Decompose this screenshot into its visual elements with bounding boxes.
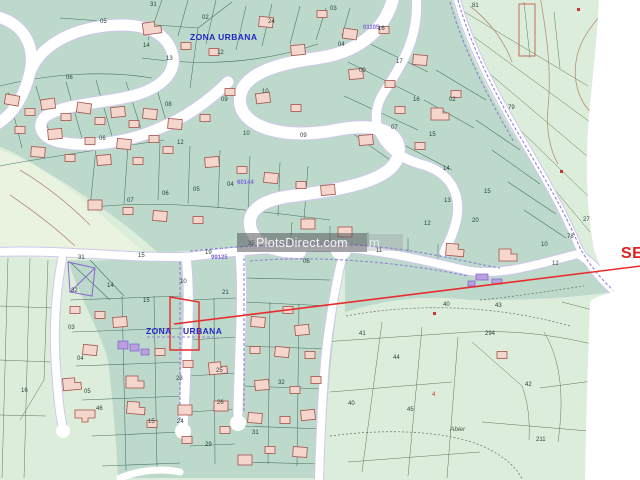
parcel-number-label: 41: [359, 331, 366, 337]
parcel-number-label: 03: [330, 6, 337, 12]
parcel-number-label: 05: [84, 389, 91, 395]
street-code-label: 60144: [237, 180, 254, 186]
parcel-number-label: 15: [484, 189, 491, 195]
zona-urbana-label: ZONA: [146, 327, 172, 336]
parcel-number-label: 40: [443, 302, 450, 308]
parcel-number-label: 14: [443, 166, 450, 172]
parcel-number-label: Abier: [450, 427, 465, 434]
parcel-number-label: 32: [278, 380, 285, 386]
parcel-number-label: 31: [252, 430, 259, 436]
parcel-number-label: 43: [495, 303, 502, 309]
parcel-number-label: 05: [100, 19, 107, 25]
parcel-number-label: 10: [243, 131, 250, 137]
parcel-number-label: 07: [127, 198, 134, 204]
parcel-number-label: 12: [552, 261, 559, 267]
parcel-number-label: 06: [303, 259, 310, 265]
parcel-number-label: 13: [166, 56, 173, 62]
parcel-number-label: 294: [485, 331, 495, 337]
parcel-number-label: 03: [68, 325, 75, 331]
parcel-number-label: 78: [567, 234, 574, 240]
zona-urbana-label: ZONA URBANA: [190, 33, 257, 42]
parcel-number-label: 02: [202, 15, 209, 21]
parcel-number-label: 09: [300, 133, 307, 139]
parcel-number-label: 79: [508, 105, 515, 111]
parcel-number-label: 16: [413, 97, 420, 103]
parcel-number-label: 21: [222, 290, 229, 296]
parcel-number-label: 14: [107, 283, 114, 289]
parcel-number-label: 15: [429, 132, 436, 138]
culdesac-3: [56, 424, 70, 438]
parcel-number-label: 12: [217, 50, 224, 56]
parcel-number-label: 02: [449, 97, 456, 103]
cadastral-map-page: ZONA URBANAZONAURBANA991250110560144Abie…: [0, 0, 640, 480]
parcel-number-label: 25: [216, 368, 223, 374]
parcel-number-label: 40: [348, 401, 355, 407]
culdesac-2: [230, 415, 246, 431]
parcel-number-label: 09: [221, 97, 228, 103]
parcel-number-label: 4: [432, 392, 435, 398]
street-code-label: 01105: [363, 25, 379, 31]
parcel-number-label: 31: [150, 2, 157, 8]
parcel-number-label: 10: [541, 242, 548, 248]
parcel-number-label: 45: [407, 407, 414, 413]
parcel-number-label: 81: [472, 3, 479, 9]
parcel-number-label: 23: [176, 376, 183, 382]
parcel-number-label: 06: [66, 75, 73, 81]
parcel-number-label: 19: [205, 250, 212, 256]
parcel-number-label: 15: [148, 419, 155, 425]
parcel-number-label: 04: [227, 182, 234, 188]
parcel-number-label: 10: [180, 279, 187, 285]
parcel-number-label: 15: [143, 298, 150, 304]
parcel-number-label: 44: [393, 355, 400, 361]
parcel-number-label: 08: [165, 102, 172, 108]
parcel-number-label: 20: [472, 218, 479, 224]
zona-urbana-label: URBANA: [183, 327, 222, 336]
parcel-number-label: 06: [162, 191, 169, 197]
watermark-ghost: m: [367, 234, 403, 251]
parcel-number-label: 27: [583, 217, 590, 223]
parcel-number-label: 15: [138, 253, 145, 259]
parcel-number-label: 04: [338, 42, 345, 48]
parcel-number-label: 16: [21, 388, 28, 394]
parcel-number-label: 211: [536, 437, 546, 443]
parcel-number-label: 29: [205, 442, 212, 448]
parcel-number-label: 09: [359, 68, 366, 74]
parcel-number-label: 12: [424, 221, 431, 227]
parcel-number-label: 07: [391, 125, 398, 131]
parcel-number-label: 16: [378, 26, 385, 32]
parcel-number-label: 04: [77, 356, 84, 362]
watermark: PlotsDirect.com: [237, 233, 367, 252]
parcel-number-label: 24: [177, 419, 184, 425]
parcel-number-label: 10: [262, 89, 269, 95]
parcel-number-label: 13: [444, 198, 451, 204]
parcel-number-label: 32: [71, 288, 78, 294]
parcel-number-label: 24: [268, 19, 275, 25]
parcel-number-label: 12: [177, 140, 184, 146]
parcel-number-label: 06: [99, 136, 106, 142]
parcel-number-label: 14: [143, 43, 150, 49]
parcel-number-label: 05: [193, 187, 200, 193]
parcel-number-label: 42: [525, 382, 532, 388]
street-code-label: 99125: [211, 255, 228, 261]
parcel-number-label: 26: [217, 400, 224, 406]
parcel-number-label: 17: [396, 59, 403, 65]
parcel-number-label: 46: [96, 406, 103, 412]
annotation-text-se: SE: [621, 245, 640, 263]
parcel-number-label: 31: [78, 255, 85, 261]
